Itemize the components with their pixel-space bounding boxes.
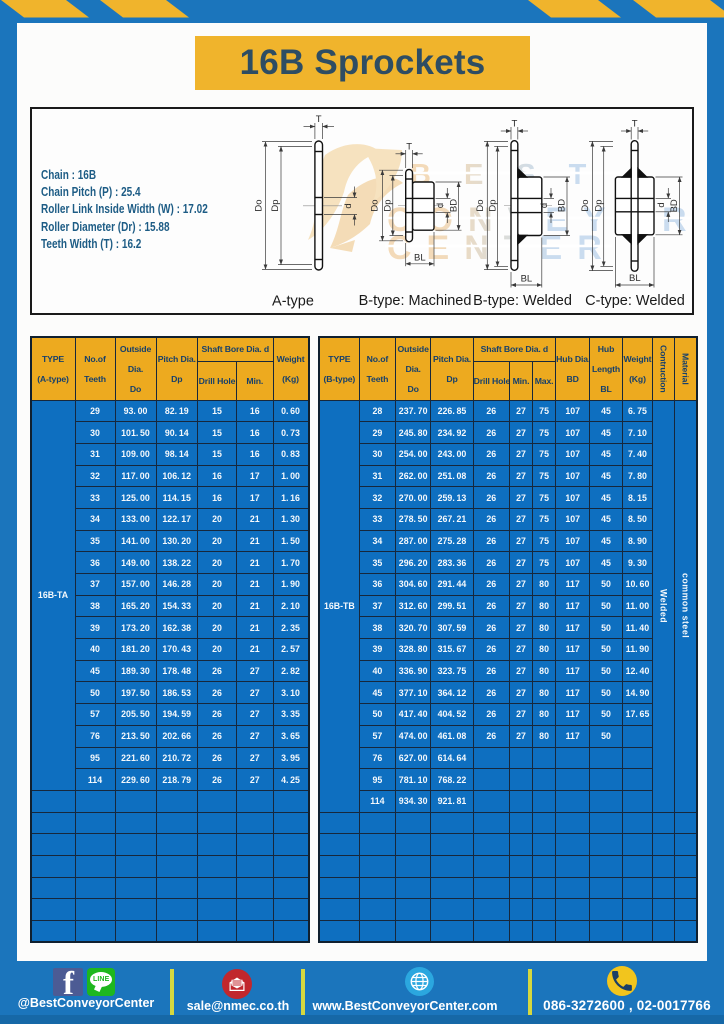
svg-text:d: d [539, 203, 550, 208]
svg-text:BD: BD [448, 199, 459, 212]
svg-text:T: T [406, 142, 412, 153]
svg-text:BL: BL [629, 273, 641, 284]
svg-text:Dp: Dp [593, 199, 604, 211]
svg-text:BL: BL [521, 274, 533, 285]
svg-text:BD: BD [557, 199, 568, 212]
svg-text:B-type: Welded: B-type: Welded [473, 293, 572, 309]
svg-text:A-type: A-type [272, 294, 314, 310]
svg-text:C-type: Welded: C-type: Welded [585, 293, 685, 309]
svg-text:Do: Do [254, 199, 265, 211]
svg-text:T: T [511, 119, 517, 130]
svg-text:BL: BL [414, 253, 426, 264]
svg-text:Dp: Dp [270, 199, 281, 211]
svg-text:T: T [316, 114, 322, 125]
svg-text:B-type: Machined: B-type: Machined [359, 293, 472, 309]
svg-text:Do: Do [475, 199, 486, 211]
svg-text:Dp: Dp [487, 199, 498, 211]
svg-text:Do: Do [580, 199, 591, 211]
svg-text:Do: Do [370, 199, 381, 211]
svg-text:d: d [343, 203, 354, 208]
svg-text:d: d [435, 203, 446, 208]
svg-text:d: d [656, 202, 667, 207]
svg-text:BD: BD [669, 199, 680, 212]
svg-text:T: T [632, 119, 638, 130]
svg-text:Dp: Dp [382, 199, 393, 211]
